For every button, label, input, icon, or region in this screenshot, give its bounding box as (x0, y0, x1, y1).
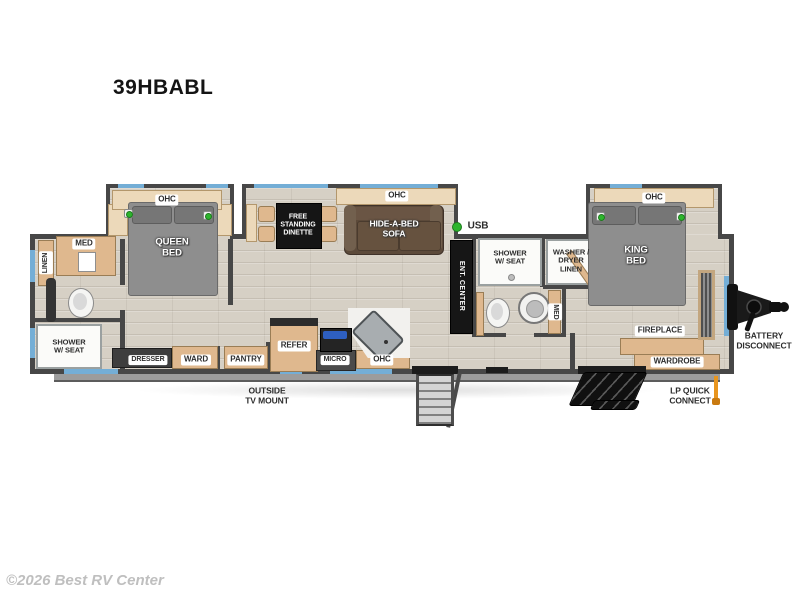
window-accent (30, 328, 35, 358)
label-ward: WARD (181, 355, 211, 366)
label-ohc: OHC (385, 191, 408, 202)
label-wardrobe: WARDROBE (651, 357, 704, 368)
label-ohc: OHC (642, 193, 665, 204)
fireplace-cabinet (620, 338, 704, 355)
window-seat (246, 204, 257, 242)
label-pantry: PANTRY (227, 355, 264, 366)
dinette-chair (258, 226, 275, 242)
door-threshold (486, 367, 508, 373)
label-ohc: OHC (370, 355, 393, 366)
burners (323, 331, 347, 339)
label-king-bed: KING BED (621, 244, 650, 267)
shower-drain (508, 274, 515, 281)
vanity-ledge (46, 278, 56, 322)
label-dresser: DRESSER (128, 355, 167, 365)
label-free-standing-dinette: FREE STANDING DINETTE (280, 213, 315, 236)
pillow (132, 206, 172, 224)
wall (228, 239, 233, 305)
label-hide-a-bed-sofa: HIDE-A-BED SOFA (366, 218, 421, 239)
bath-sink (78, 252, 96, 272)
label-shower-w-seat: SHOWER W/ SEAT (52, 339, 85, 356)
label-queen-bed: QUEEN BED (152, 236, 191, 259)
label-lp-quick-connect: LP QUICK CONNECT (669, 386, 710, 405)
faucet (384, 340, 388, 344)
window-accent (206, 184, 228, 188)
refer-top (270, 318, 318, 326)
label-linen: LINEN (39, 252, 53, 275)
window-accent (30, 250, 35, 282)
window-accent (64, 369, 118, 374)
label-refer: REFER (278, 341, 311, 352)
reading-light-icon (596, 212, 605, 221)
door-threshold (412, 366, 458, 374)
sofa-armrest (344, 205, 356, 251)
label-usb: USB (468, 220, 489, 231)
model-number: 39HBABL (113, 76, 213, 100)
wall (120, 239, 125, 285)
label-fireplace: FIREPLACE (635, 326, 685, 337)
toilet-bowl (73, 293, 87, 310)
label-med: MED (72, 239, 95, 250)
label-ohc: OHC (155, 195, 178, 206)
front-wardrobe-panel (698, 270, 715, 340)
fold-out-step-pad (590, 400, 640, 410)
label-micro: MICRO (321, 355, 350, 365)
dinette-chair (320, 226, 337, 242)
toilet-bowl (491, 303, 503, 320)
label-shower-w-seat: SHOWER W/ SEAT (493, 250, 526, 267)
label-battery-disconnect: BATTERY DISCONNECT (736, 331, 791, 350)
usb-indicator-icon (452, 222, 462, 232)
label-washer-dryer-linen: WASHER / DRYER LINEN (553, 248, 589, 273)
window-accent (254, 184, 328, 188)
watermark: ©2026 Best RV Center (6, 572, 164, 589)
label-med: MED (548, 303, 562, 320)
wall (562, 287, 566, 337)
entry-steps (416, 374, 454, 426)
window-accent (118, 184, 144, 188)
dinette-chair (320, 206, 337, 222)
label-outside-tv-mount: OUTSIDE TV MOUNT (245, 386, 289, 405)
dinette-chair (258, 206, 275, 222)
lp-line (714, 376, 718, 400)
round-sink-basin (526, 300, 544, 318)
bath-shelf (476, 292, 484, 336)
label-ent-center: ENT. CENTER (457, 261, 465, 311)
wall (570, 333, 575, 373)
reading-light-icon (203, 211, 212, 220)
reading-light-icon (124, 209, 133, 218)
lp-connector (712, 398, 720, 405)
reading-light-icon (676, 212, 685, 221)
floorplan: 39HBABL ©2026 Best RV Center LINEN MED S… (0, 0, 800, 600)
